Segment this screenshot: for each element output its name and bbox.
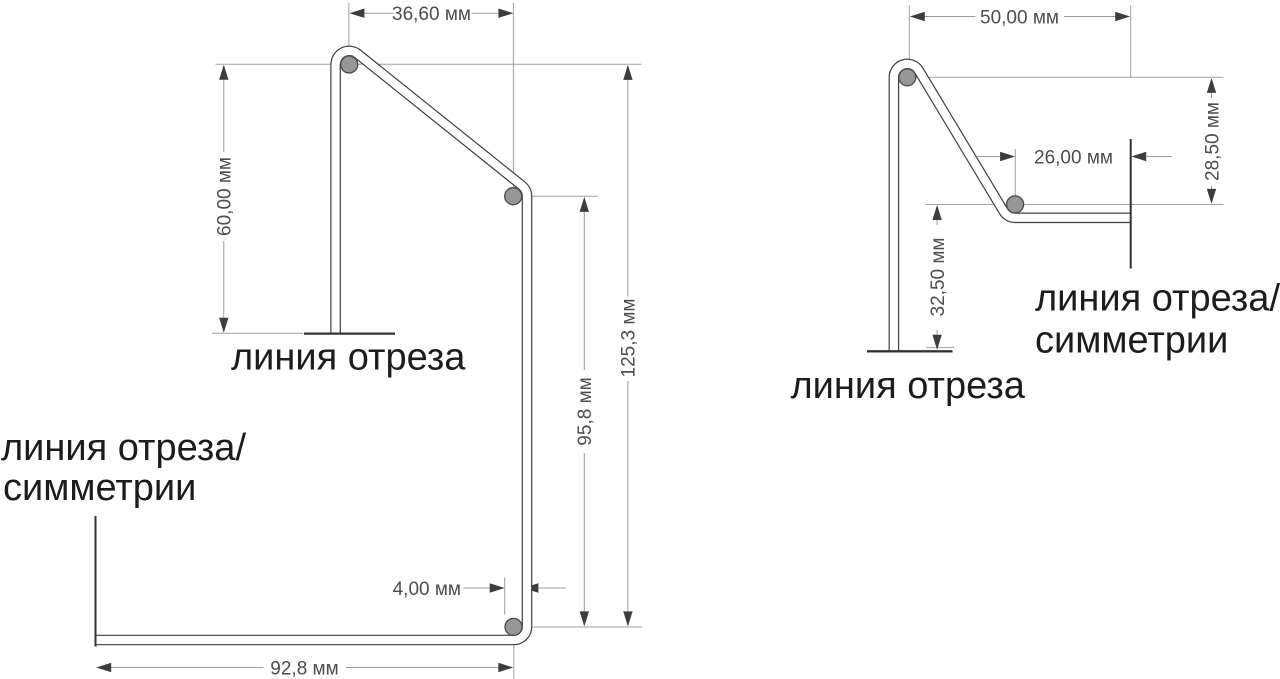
svg-text:линия отреза: линия отреза [791, 365, 1026, 407]
svg-text:95,8 мм: 95,8 мм [575, 377, 596, 445]
svg-text:линия отреза: линия отреза [231, 337, 466, 379]
svg-text:линия отреза/: линия отреза/ [1035, 278, 1280, 320]
svg-text:симметрии: симметрии [1035, 320, 1228, 362]
svg-text:4,00 мм: 4,00 мм [393, 579, 461, 600]
svg-text:26,00 мм: 26,00 мм [1034, 147, 1113, 168]
svg-text:линия отреза/: линия отреза/ [1, 427, 246, 469]
svg-text:50,00 мм: 50,00 мм [980, 7, 1059, 28]
svg-text:32,50 мм: 32,50 мм [928, 238, 949, 317]
svg-text:28,50 мм: 28,50 мм [1202, 102, 1223, 181]
svg-text:36,60 мм: 36,60 мм [392, 4, 471, 25]
svg-text:симметрии: симметрии [3, 467, 196, 509]
svg-text:60,00 мм: 60,00 мм [215, 157, 236, 236]
svg-text:125,3 мм: 125,3 мм [619, 299, 640, 378]
svg-text:92,8 мм: 92,8 мм [270, 658, 338, 679]
